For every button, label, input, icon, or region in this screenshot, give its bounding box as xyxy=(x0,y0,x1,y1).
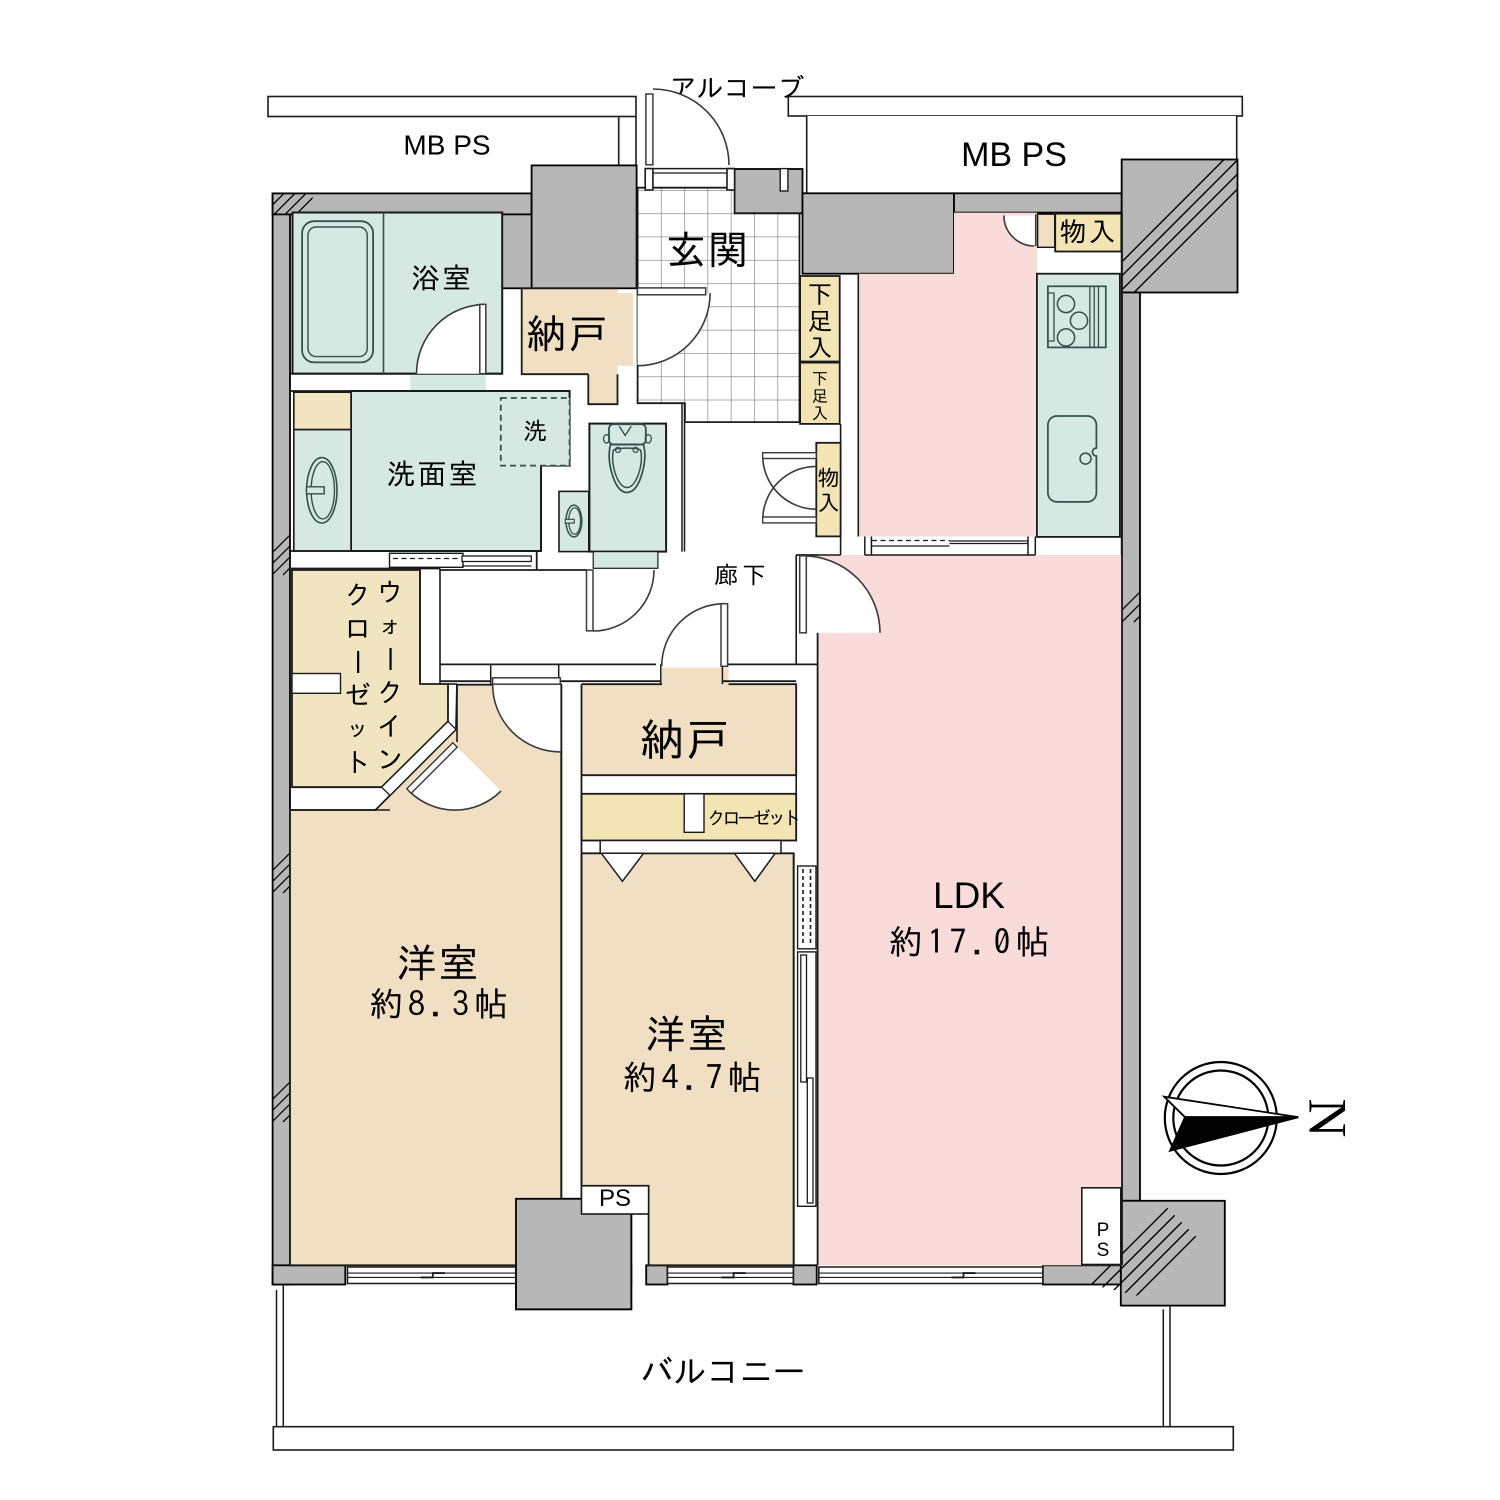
svg-text:MB PS: MB PS xyxy=(403,130,490,161)
svg-text:LDK: LDK xyxy=(933,875,1005,916)
svg-text:N: N xyxy=(1298,1099,1358,1138)
svg-text:PS: PS xyxy=(599,1185,631,1212)
svg-text:P: P xyxy=(1097,1220,1110,1241)
svg-text:MB PS: MB PS xyxy=(961,136,1067,174)
svg-text:S: S xyxy=(1097,1240,1110,1261)
